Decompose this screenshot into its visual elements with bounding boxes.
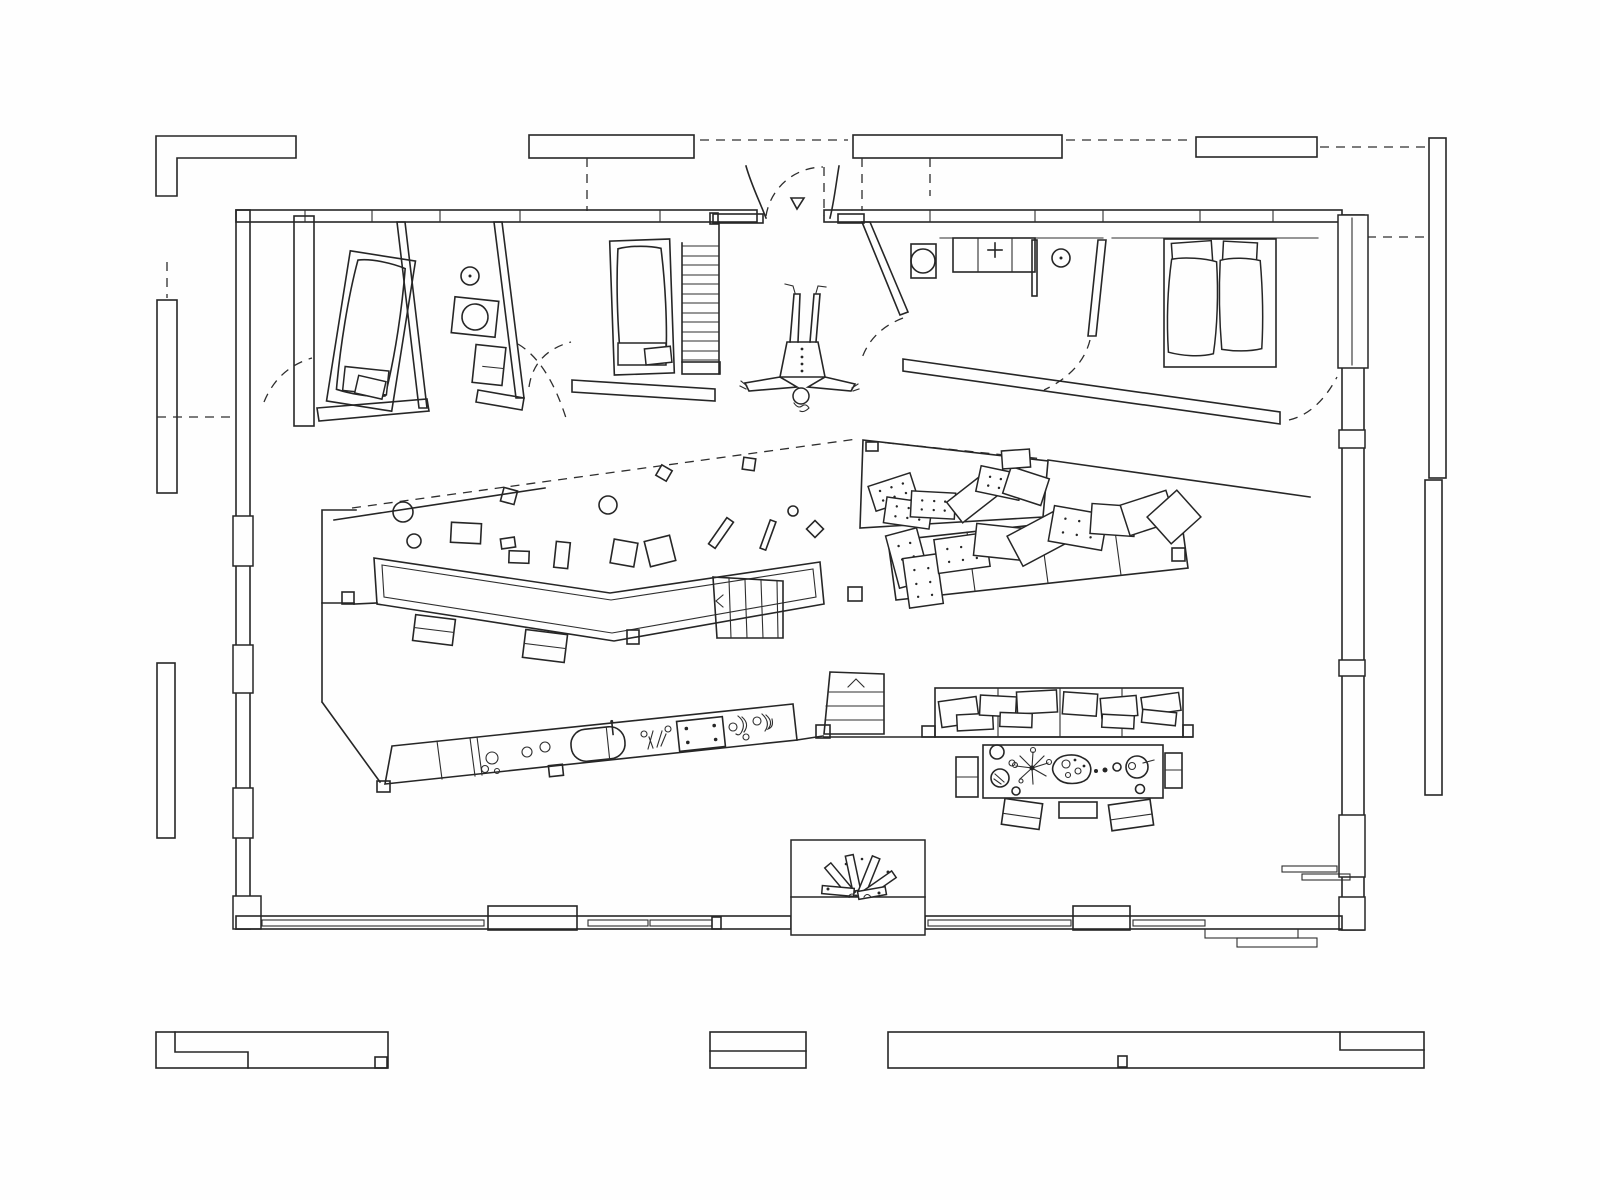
sofa-row xyxy=(922,688,1193,737)
kitchen-counter xyxy=(377,704,823,792)
stair-block xyxy=(816,672,884,738)
arm-right xyxy=(808,377,855,391)
stair-arrow-icon xyxy=(716,595,723,607)
roof-dash-left xyxy=(352,439,857,508)
window-seat-right xyxy=(1073,906,1130,930)
counter-with-faucet xyxy=(953,238,1035,272)
wc-right-wall xyxy=(1088,240,1106,336)
chair xyxy=(956,757,978,797)
floor-plan-drawing xyxy=(0,0,1600,1200)
bedroom-1 xyxy=(264,216,429,426)
pergola-strip-right-1 xyxy=(1429,138,1446,478)
living-dining xyxy=(377,672,1193,935)
bathroom-1-return-wall xyxy=(476,390,524,410)
bench xyxy=(522,630,567,663)
garden-wall-bottom-left xyxy=(156,1032,388,1068)
arm-left xyxy=(745,377,797,391)
bathroom-1 xyxy=(451,222,566,418)
cooktop-icon xyxy=(677,717,726,752)
fireplace xyxy=(791,840,925,935)
pergola-corner-top-left xyxy=(156,136,296,196)
pergola-strip-top-2 xyxy=(529,135,694,158)
pergola-strip-left-1 xyxy=(157,300,177,493)
hall-edge-east xyxy=(1048,460,1310,497)
entry-door-arc xyxy=(766,167,823,216)
bedroom-3 xyxy=(903,239,1337,424)
north-wall-east xyxy=(824,210,1342,222)
leg-right xyxy=(810,294,820,342)
north-wall-mullions xyxy=(305,210,1273,222)
bedroom-3-door-arc xyxy=(1289,377,1337,420)
entrance-triangle-icon xyxy=(791,198,804,209)
garden-wall-bottom-right xyxy=(888,1032,1424,1068)
pergola-strip-top-4 xyxy=(1196,137,1317,157)
foot-right xyxy=(816,286,826,293)
chair xyxy=(1165,753,1182,788)
south-wall-west xyxy=(236,916,791,929)
herbs-sketch xyxy=(641,726,671,749)
dining-set xyxy=(956,745,1182,831)
wc-left-wall xyxy=(862,222,908,315)
pergola-strip-left-2 xyxy=(157,663,175,838)
garden-wall-bottom-middle xyxy=(710,1032,806,1068)
duvet xyxy=(1166,257,1219,356)
bedroom-1-right-wall xyxy=(397,222,427,408)
handstand-figure xyxy=(740,284,859,412)
bedroom-2-bottom-wall xyxy=(572,380,715,401)
bench xyxy=(413,615,456,646)
pergola-strip-right-2 xyxy=(1425,480,1442,795)
bedroom-1-door-arc xyxy=(264,358,312,402)
scattered-toys xyxy=(393,457,823,568)
chair xyxy=(1059,802,1097,818)
pit-cushions xyxy=(868,449,1049,529)
ladder-stair xyxy=(682,222,720,374)
flower-vase-icon xyxy=(1013,748,1052,785)
window-seat-left xyxy=(488,906,577,930)
pergola-strip-top-3 xyxy=(853,135,1062,158)
sink-icon xyxy=(569,719,627,763)
bathroom-1-door-arc xyxy=(518,344,566,418)
long-desk xyxy=(374,558,824,662)
chair xyxy=(1108,799,1153,831)
toilet-icon xyxy=(451,297,499,337)
stair-down-central xyxy=(713,577,783,638)
floor-plan-page xyxy=(0,0,1600,1200)
single-bed-1 xyxy=(327,251,416,411)
bedroom-2 xyxy=(529,222,720,401)
bedroom-1-left-wall xyxy=(294,216,314,426)
hall-west-alcove xyxy=(322,510,380,782)
wc-kitchenette xyxy=(862,222,1106,390)
stair-arrow-icon xyxy=(848,679,864,687)
column-post xyxy=(848,587,862,601)
bedroom-3-diagonal-wall xyxy=(903,359,1280,424)
platter xyxy=(1053,755,1091,784)
washbasin-icon xyxy=(472,345,506,386)
leg-left xyxy=(790,294,800,342)
chair xyxy=(1001,798,1042,829)
table-setting xyxy=(990,745,1154,795)
single-bed-2 xyxy=(610,239,675,375)
wc-door-arc-left xyxy=(862,318,903,358)
double-bed xyxy=(1164,239,1276,367)
duvet xyxy=(1219,258,1264,351)
toilet-icon xyxy=(911,244,936,278)
lounge-pit xyxy=(860,440,1049,529)
head xyxy=(793,388,809,404)
fruit-sketch xyxy=(729,714,773,740)
foot-left xyxy=(785,284,795,293)
